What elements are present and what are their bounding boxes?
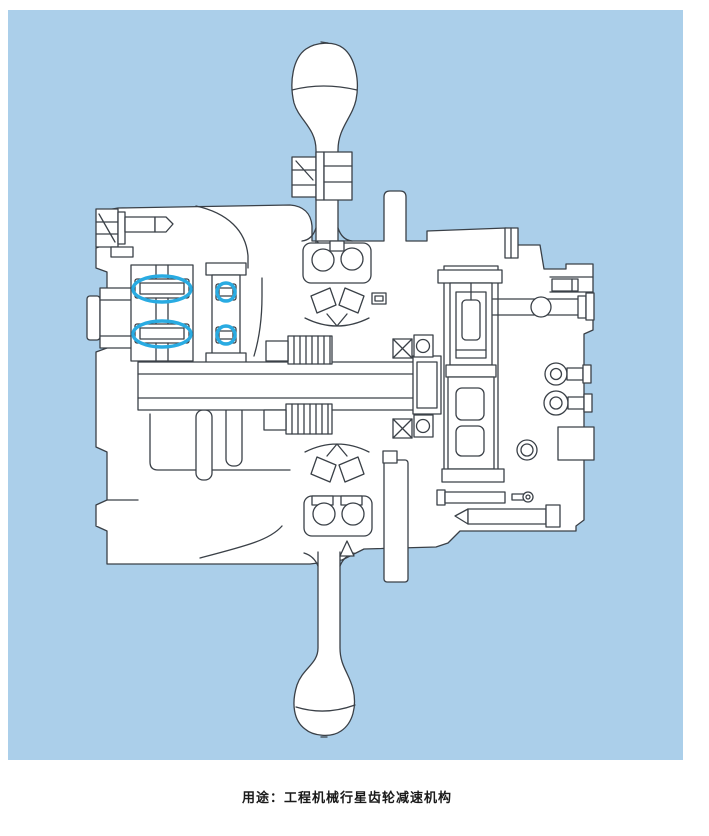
planet-roller — [342, 503, 364, 525]
locating-pin — [552, 279, 578, 291]
carrier-slot — [196, 410, 212, 480]
gear-reducer-diagram — [0, 0, 709, 836]
planet-roller — [341, 248, 363, 270]
hub-block — [100, 288, 133, 348]
upper-stem-hex-bolt — [292, 157, 316, 197]
spline-lower — [286, 404, 332, 434]
right-block — [558, 427, 594, 460]
planet-roller — [313, 503, 335, 525]
main-shaft — [138, 362, 438, 410]
carrier-slot — [226, 404, 242, 466]
figure-caption: 用途：工程机械行星齿轮减速机构 — [242, 787, 452, 806]
page: 用途：工程机械行星齿轮减速机构 — [0, 0, 709, 836]
port-bore — [531, 297, 551, 317]
pipe-rod-lower — [468, 509, 546, 524]
planet-roller — [312, 249, 334, 271]
upper-stem-block — [324, 152, 352, 200]
hub-end-cap — [87, 296, 100, 340]
pipe-rod-upper — [445, 492, 505, 503]
lower-bracket-rod — [384, 460, 408, 582]
